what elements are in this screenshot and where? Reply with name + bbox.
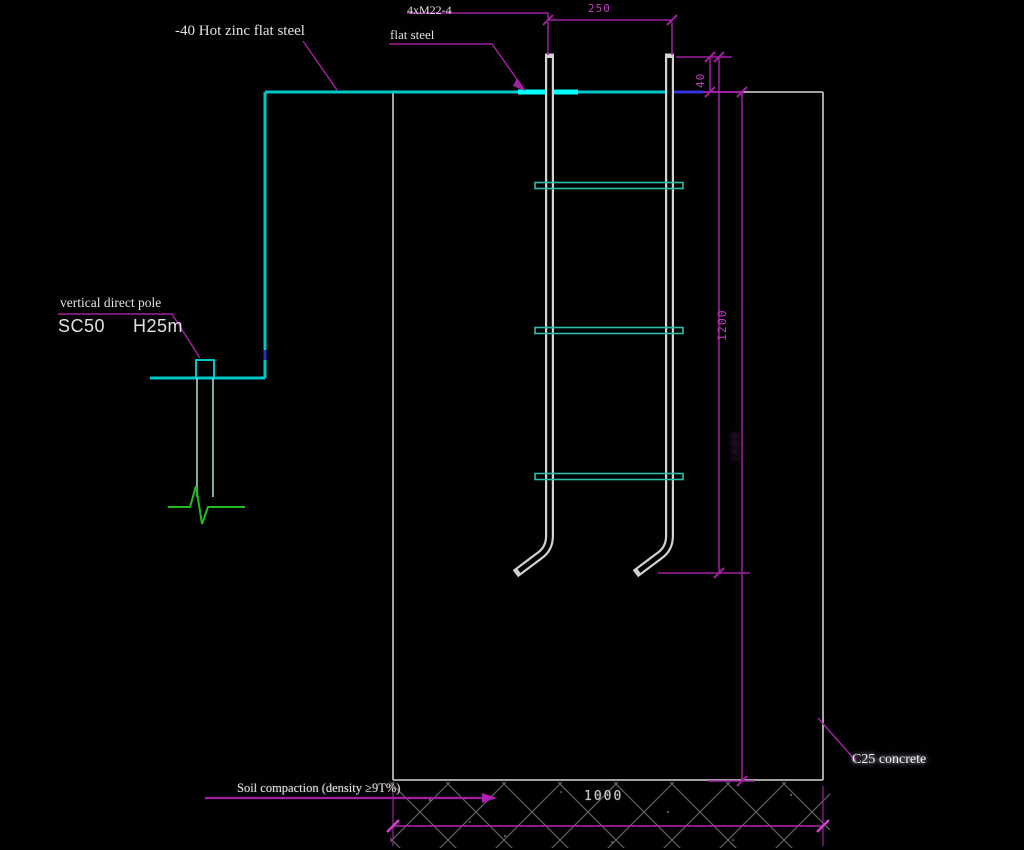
vertical-direct-pole-label: vertical direct pole [60, 295, 161, 311]
flat-steel-leader [389, 44, 524, 89]
anchor-bolt-spec-label: 4xM22-4 [407, 3, 452, 18]
pole-spec-sc50: SC50 [58, 316, 105, 336]
pole-spec-h25m: H25m [133, 316, 183, 336]
drawing-linework [0, 0, 1024, 850]
pole-spec-label: SC50H25m [58, 316, 183, 337]
dimension-foundation-width: 1000 [584, 789, 623, 804]
dimension-embed-depth-faint: 1600 [729, 432, 742, 463]
dimension-bolt-projection: 40 [694, 73, 707, 88]
leader-lines [58, 13, 856, 803]
pole-stub [168, 360, 245, 524]
hot-zinc-flat-steel-label: -40 Hot zinc flat steel [175, 23, 305, 40]
soil-compaction-label: Soil compaction (density ≥9T%) [237, 781, 400, 796]
hot-zinc-leader [303, 41, 337, 90]
break-symbol [168, 486, 245, 524]
tie-crossbars [535, 183, 683, 480]
dimension-lines [387, 15, 829, 846]
c25-concrete-label: C25 concrete [852, 752, 926, 768]
cad-drawing: -40 Hot zinc flat steel 4xM22-4 flat ste… [0, 0, 1024, 850]
anchor-bolts [519, 58, 670, 571]
dimension-anchor-spacing: 250 [588, 2, 611, 15]
foundation-outline [393, 92, 823, 780]
dimension-bolt-length: 1200 [715, 309, 729, 341]
flat-steel-lines [150, 92, 742, 378]
flat-steel-label: flat steel [390, 27, 434, 43]
